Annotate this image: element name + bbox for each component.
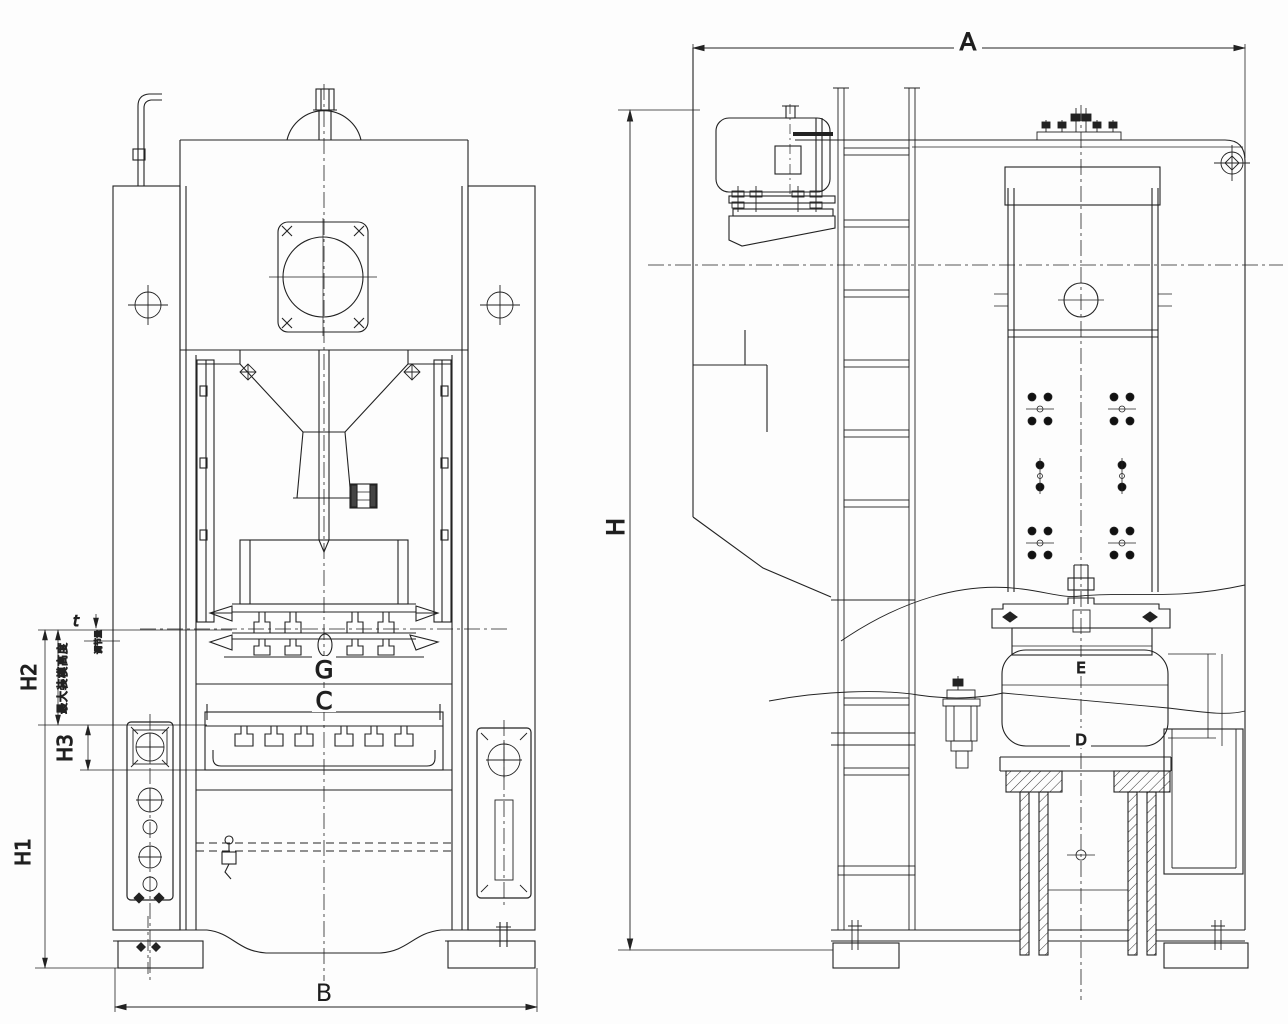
label-h1: H1 — [11, 838, 35, 866]
label-max-die-height: 最大装模高度 — [55, 642, 69, 714]
left-control-panel — [127, 722, 173, 903]
technical-drawing-canvas: B H1 H2 H3 t 最大装模高度 调节量 G C A H — [0, 0, 1288, 1024]
ladder — [831, 88, 920, 930]
side-view: A H — [602, 28, 1283, 1000]
bolt-cluster-left — [1026, 393, 1054, 559]
front-view: B H1 H2 H3 t 最大装模高度 调节量 G C — [11, 84, 537, 1012]
label-b: B — [316, 979, 332, 1007]
right-lower-box — [1164, 729, 1243, 874]
label-g: G — [315, 656, 334, 684]
dimension-b: B — [115, 968, 537, 1012]
label-h: H — [602, 518, 630, 536]
side-centerlines — [648, 105, 1283, 1000]
label-t: t — [73, 612, 80, 630]
label-e: E — [1076, 659, 1085, 677]
die-shank-hole — [318, 634, 332, 656]
bolt-cluster-right — [1108, 393, 1136, 559]
valve — [222, 836, 236, 879]
pump-unit — [943, 676, 980, 768]
section-columns — [1006, 771, 1170, 955]
label-adjust-note: 调节量 — [94, 630, 103, 654]
label-d: D — [1075, 731, 1087, 749]
dimension-a: A — [693, 28, 1245, 158]
side-slide-assembly — [992, 565, 1222, 771]
hook-rod — [133, 94, 162, 186]
diamond-target-marks — [240, 364, 420, 380]
label-a: A — [960, 28, 977, 56]
side-body-outline — [693, 48, 1245, 930]
side-inner-structure — [994, 167, 1172, 592]
label-h3: H3 — [53, 734, 77, 762]
top-mount-plate — [1037, 108, 1121, 140]
drawing-sheet: B H1 H2 H3 t 最大装模高度 调节量 G C A H — [0, 0, 1288, 1024]
label-c: C — [316, 687, 333, 715]
motor-mount — [729, 186, 835, 246]
motor — [716, 104, 830, 196]
dimension-h: H — [602, 110, 833, 950]
crank-plate — [269, 218, 377, 336]
label-h2: H2 — [17, 663, 41, 691]
